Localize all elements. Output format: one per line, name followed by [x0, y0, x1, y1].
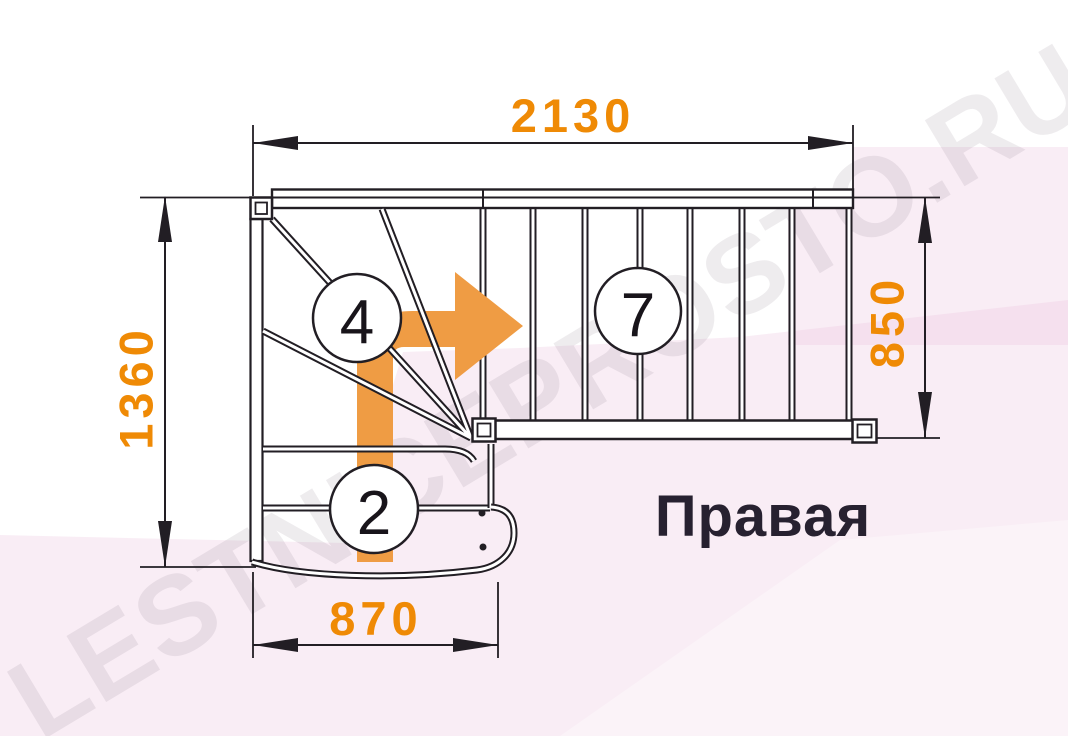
step-number-winder: 4 — [297, 287, 417, 358]
top-left-post — [251, 198, 273, 220]
bottom-stringer — [495, 420, 853, 439]
baluster-dot — [479, 510, 486, 517]
top-stringer — [272, 190, 853, 209]
left-stringer — [251, 219, 263, 561]
baluster-dot — [480, 544, 487, 551]
dimension-label-total-depth: 1360 — [109, 278, 164, 498]
step-number-bottom-flight: 2 — [314, 478, 434, 549]
orientation-label: Правая — [603, 483, 923, 550]
staircase-plan-drawing: LESTNICEPROSTO.RU — [0, 0, 1068, 736]
dimension-label-flight-width: 850 — [860, 212, 915, 432]
step-number-straight-flight: 7 — [578, 280, 698, 351]
dimension-label-bottom-flight-width: 870 — [266, 591, 486, 646]
inner-corner-post — [473, 419, 496, 442]
dimension-label-total-length: 2130 — [463, 88, 683, 143]
